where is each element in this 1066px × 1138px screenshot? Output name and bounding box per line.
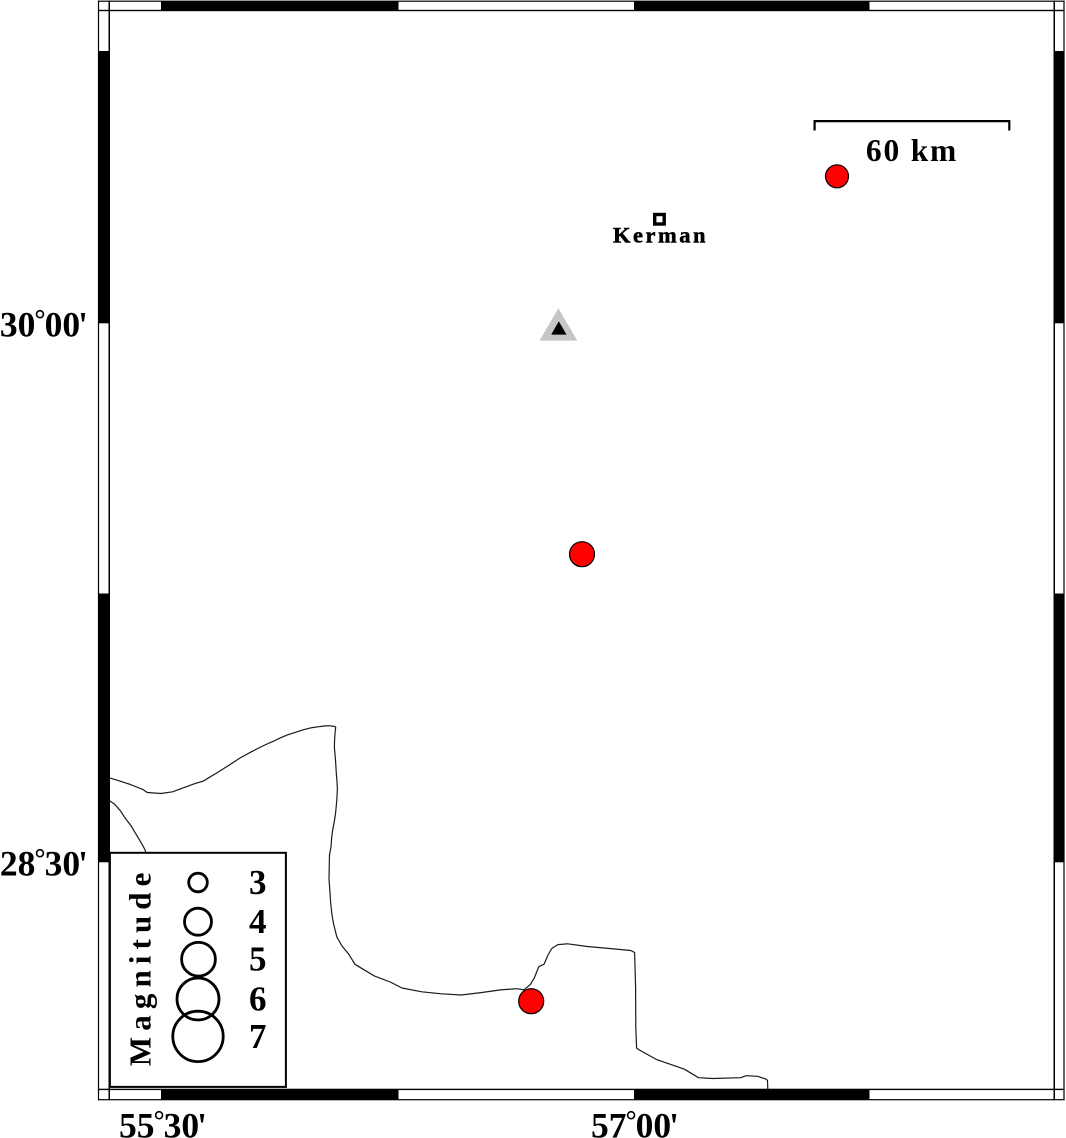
- svg-text:4: 4: [249, 902, 267, 941]
- svg-text:57°00': 57°00': [591, 1106, 679, 1138]
- svg-text:55°30': 55°30': [119, 1106, 207, 1138]
- svg-text:6: 6: [249, 980, 267, 1019]
- svg-text:30°00': 30°00': [0, 305, 88, 345]
- svg-text:Kerman: Kerman: [613, 223, 708, 248]
- svg-text:Magnitude: Magnitude: [123, 867, 158, 1067]
- svg-text:5: 5: [249, 940, 267, 979]
- svg-text:3: 3: [249, 863, 267, 902]
- svg-text:28°30': 28°30': [0, 844, 88, 884]
- svg-text:7: 7: [249, 1017, 267, 1056]
- svg-text:60 km: 60 km: [866, 133, 958, 168]
